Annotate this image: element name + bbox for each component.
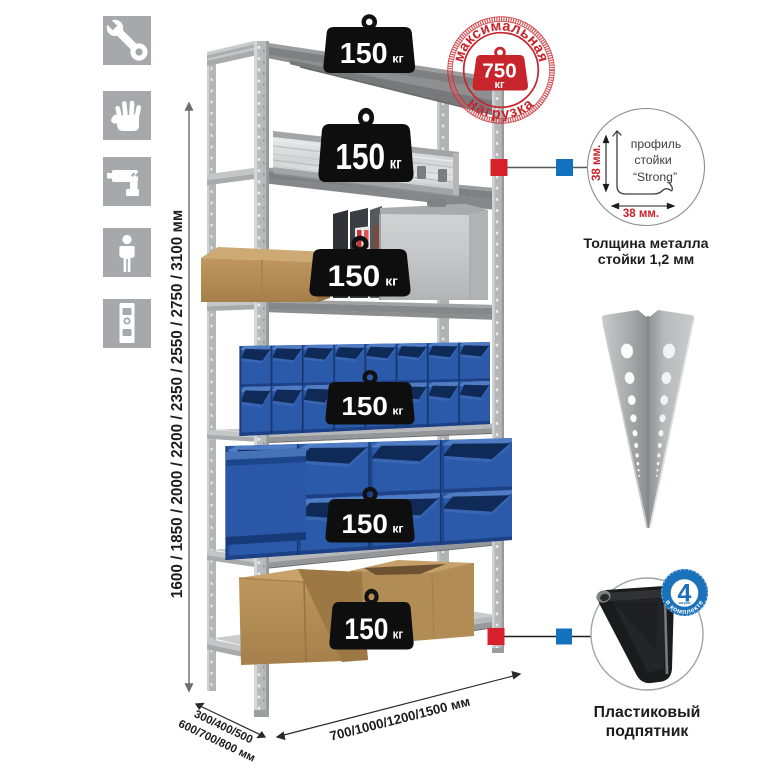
svg-text:Пластиковый: Пластиковый	[594, 704, 701, 721]
svg-text:стойки 1,2 мм: стойки 1,2 мм	[598, 252, 694, 268]
svg-text:штуки: штуки	[678, 600, 691, 605]
svg-text:Толщина металла: Толщина металла	[583, 236, 708, 252]
svg-text:подпятник: подпятник	[606, 723, 689, 740]
svg-text:38 мм.: 38 мм.	[591, 145, 603, 181]
svg-text:стойки: стойки	[634, 153, 671, 167]
svg-text:38 мм.: 38 мм.	[623, 208, 659, 220]
svg-text:“Strong”: “Strong”	[633, 170, 677, 184]
svg-text:1600 / 1850 / 2000 / 2200 / 23: 1600 / 1850 / 2000 / 2200 / 2350 / 2550 …	[169, 210, 186, 598]
svg-text:профиль: профиль	[631, 137, 681, 151]
svg-text:кг: кг	[494, 79, 505, 91]
